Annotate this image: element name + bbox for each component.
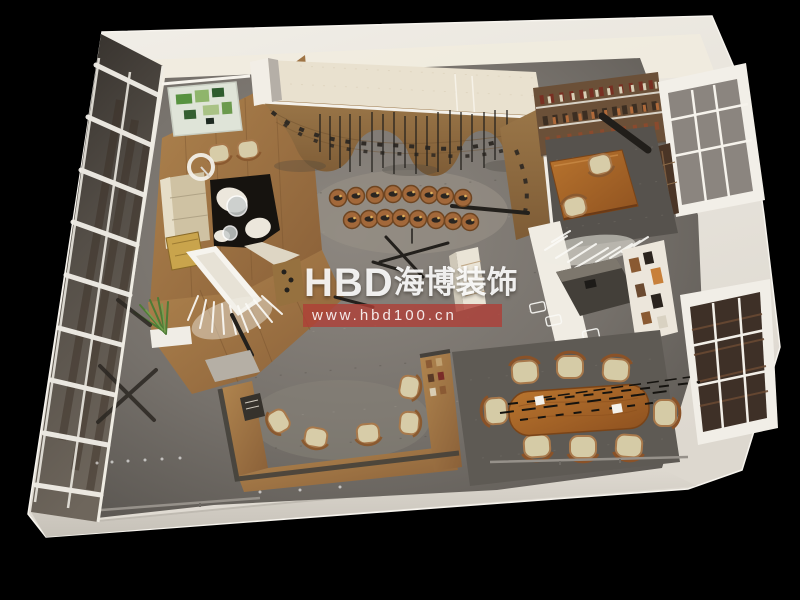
rendering-canvas: HBD海博装饰 www.hbd100.cn: [0, 0, 800, 600]
conference-chair: [555, 352, 585, 378]
conference-chair: [568, 436, 598, 462]
conference-chair: [654, 398, 680, 428]
conference-chair: [600, 354, 632, 382]
watermark-brand-latin: HBD: [304, 261, 394, 305]
bar-stool: [399, 409, 422, 437]
watermark-url: www.hbd100.cn: [303, 307, 457, 324]
glass-coffee-table: [227, 196, 247, 216]
watermark-url-banner: www.hbd100.cn: [303, 304, 502, 327]
conference-chair: [521, 434, 553, 462]
conference-chair: [480, 395, 508, 427]
bar-stool: [354, 423, 382, 446]
cowhide-rug: [210, 174, 280, 248]
watermark-brand-cjk: 海博装饰: [394, 265, 518, 300]
conference-chair: [509, 356, 541, 384]
watermark-brand: HBD海博装饰: [304, 263, 518, 303]
conference-area: [452, 330, 700, 486]
shoe-stand-small: [272, 258, 305, 307]
